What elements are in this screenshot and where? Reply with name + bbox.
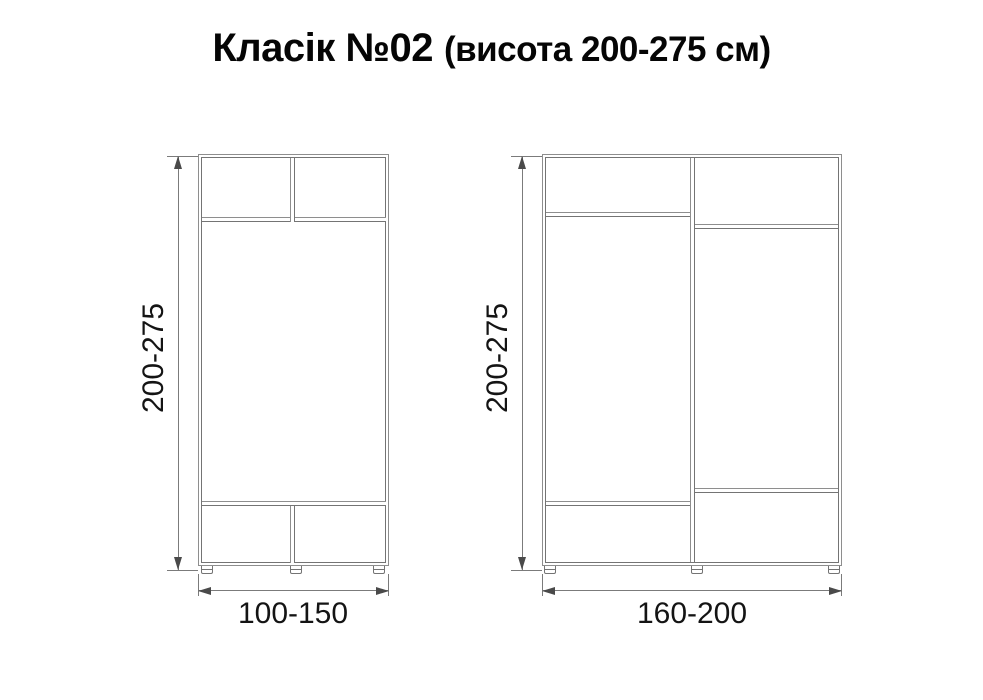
arrowhead-up-icon (518, 156, 526, 169)
title-main: Класік №02 (212, 26, 433, 70)
foot-detail-line (374, 569, 384, 570)
arrowhead-right-icon (376, 587, 389, 595)
wardrobe-foot (290, 566, 302, 574)
wardrobe-small-top-divider (290, 158, 295, 222)
page-title: Класік №02(висота 200-275 см) (0, 26, 983, 71)
arrowhead-right-icon (829, 587, 842, 595)
wardrobe-foot (201, 566, 213, 574)
arrowhead-down-icon (174, 557, 182, 570)
foot-detail-line (545, 569, 555, 570)
wardrobe-foot (691, 566, 703, 574)
foot-detail-line (692, 569, 702, 570)
width-dimension-label: 160-200 (637, 597, 747, 631)
height-dimension-label: 200-275 (481, 303, 515, 413)
height-dimension-line (522, 157, 523, 570)
height-dimension-line (178, 157, 179, 570)
height-extension-line-bottom (511, 570, 542, 571)
arrowhead-left-icon (542, 587, 555, 595)
height-dimension-label: 200-275 (137, 303, 171, 413)
arrowhead-up-icon (174, 156, 182, 169)
foot-detail-line (829, 569, 839, 570)
title-sub: (висота 200-275 см) (444, 30, 771, 69)
arrowhead-left-icon (198, 587, 211, 595)
wardrobe-large-middle-divider (690, 158, 695, 562)
wardrobe-foot (828, 566, 840, 574)
foot-detail-line (291, 569, 301, 570)
wardrobe-large-left-top-shelf (546, 212, 690, 217)
width-dimension-label: 100-150 (238, 597, 348, 631)
wardrobe-foot (373, 566, 385, 574)
wardrobe-small-bottom-divider (290, 506, 295, 563)
width-dimension-line (542, 590, 842, 591)
arrowhead-down-icon (518, 557, 526, 570)
foot-detail-line (202, 569, 212, 570)
height-extension-line-top (167, 156, 198, 157)
height-extension-line-top (511, 156, 542, 157)
wardrobe-large-left-bottom-shelf (546, 501, 690, 506)
diagram-canvas: Класік №02(висота 200-275 см) 200-275 (0, 0, 983, 700)
wardrobe-foot (544, 566, 556, 574)
width-dimension-line (198, 590, 389, 591)
wardrobe-large-right-bottom-shelf (695, 488, 838, 493)
wardrobe-large-right-top-shelf (695, 224, 838, 229)
height-extension-line-bottom (167, 570, 198, 571)
